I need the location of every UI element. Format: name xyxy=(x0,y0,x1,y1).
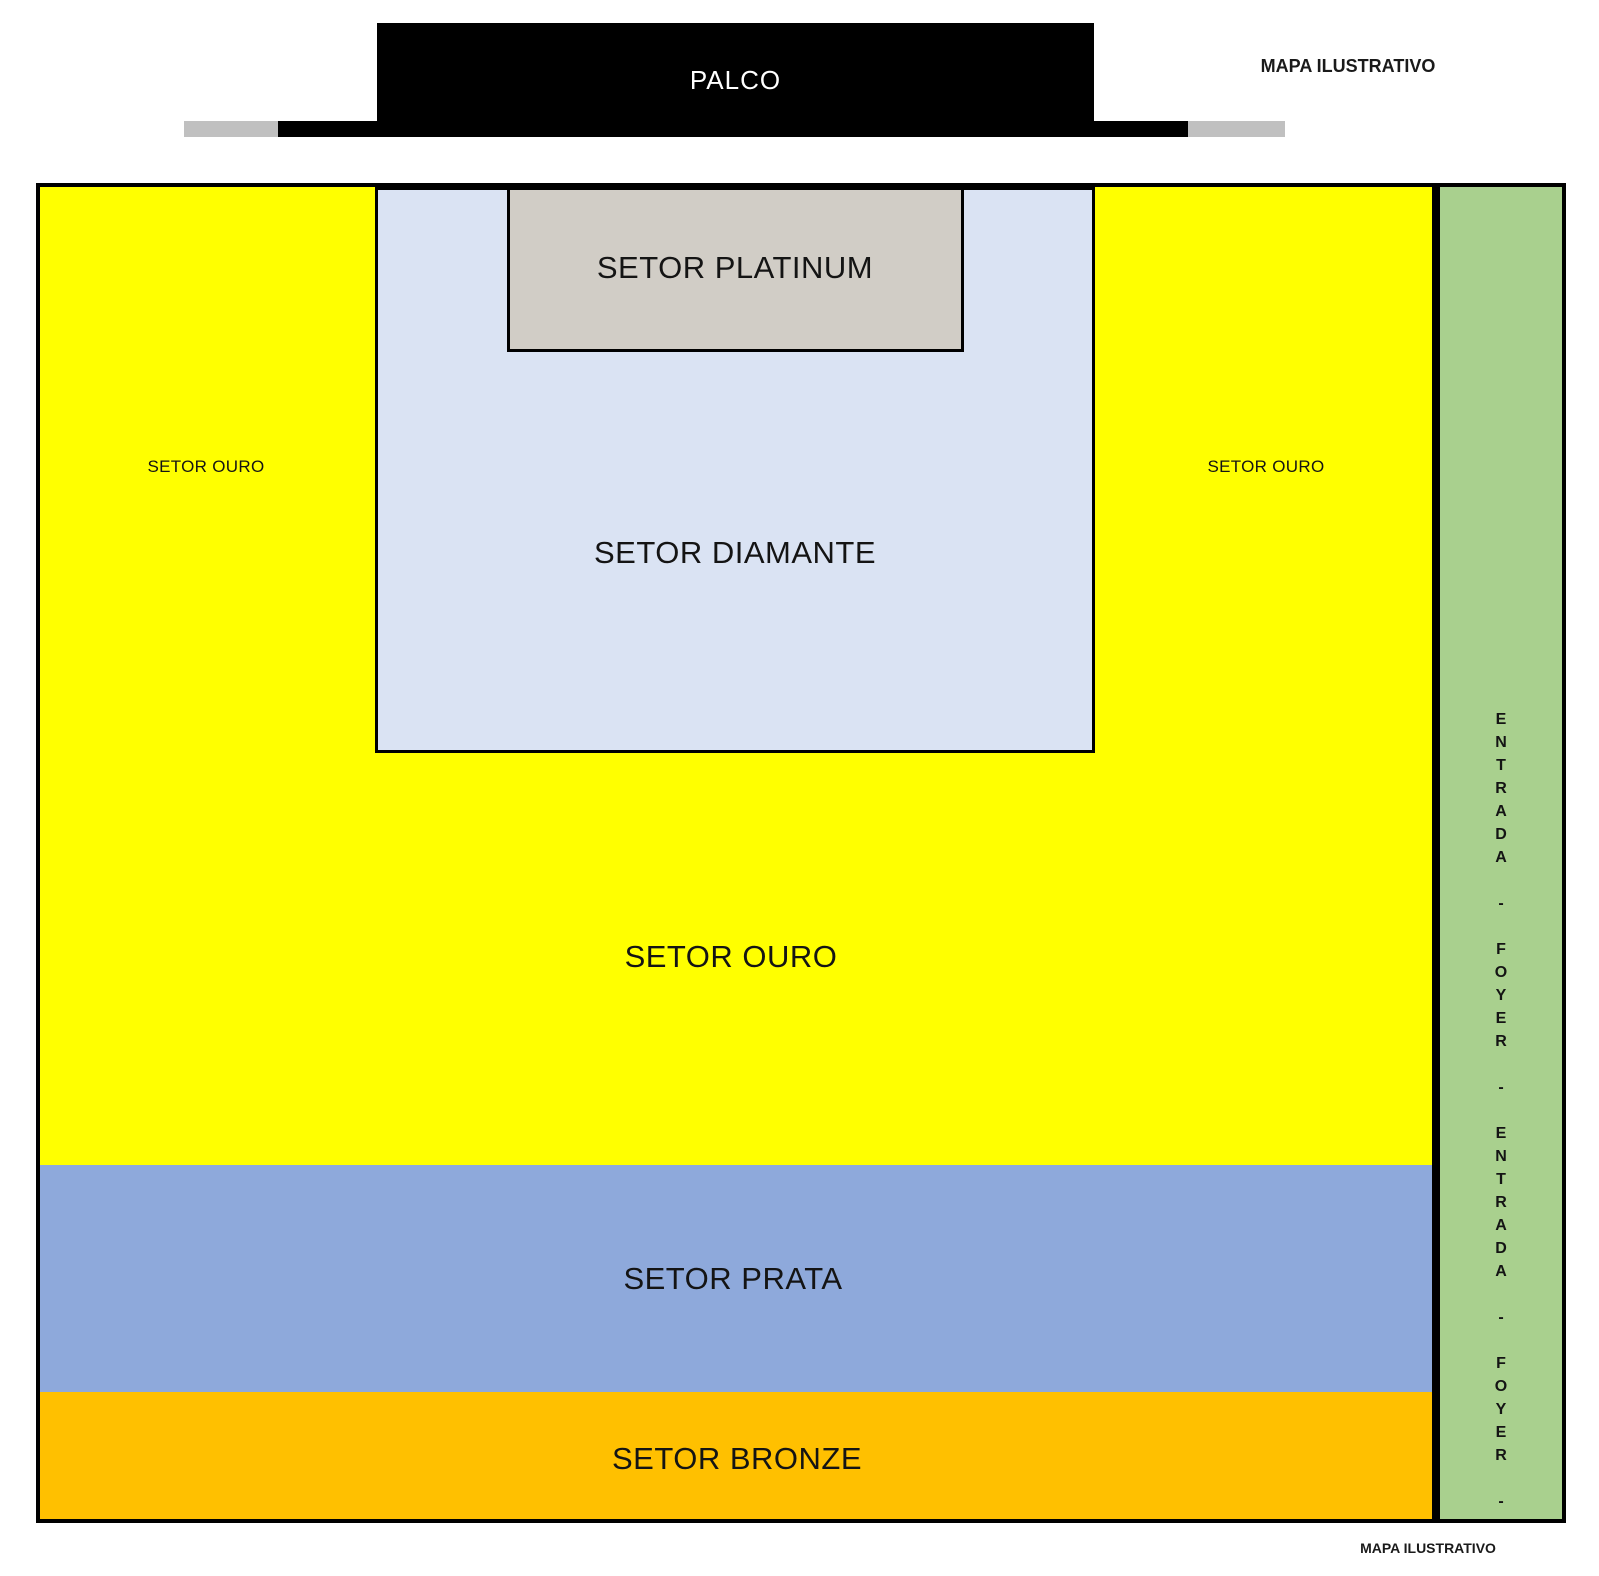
watermark-bottom: MAPA ILUSTRATIVO xyxy=(1328,1540,1528,1556)
sector-ouro-right-label: SETOR OURO xyxy=(1208,457,1325,477)
sector-ouro-center-label: SETOR OURO xyxy=(625,939,838,975)
map-area: SETOR PLATINUM SETOR DIAMANTE SETOR OURO… xyxy=(36,183,1436,1523)
stage-label: PALCO xyxy=(690,65,781,96)
venue-seating-map: PALCO MAPA ILUSTRATIVO SETOR PLATINUM SE… xyxy=(0,0,1599,1576)
sector-diamante-label: SETOR DIAMANTE xyxy=(594,535,876,571)
stage-wing-right xyxy=(1188,121,1285,137)
stage-wing-left xyxy=(184,121,278,137)
entrance-foyer-vertical-text: E N T R A D A - F O Y E R - E N T R A D … xyxy=(1495,708,1507,1519)
stage: PALCO xyxy=(377,23,1094,137)
sector-ouro-left-label: SETOR OURO xyxy=(148,457,265,477)
sector-prata-label: SETOR PRATA xyxy=(623,1261,842,1297)
sector-bronze-label: SETOR BRONZE xyxy=(612,1441,862,1477)
sector-platinum-label: SETOR PLATINUM xyxy=(597,250,873,286)
entrance-foyer-strip: E N T R A D A - F O Y E R - E N T R A D … xyxy=(1436,183,1566,1523)
watermark-top: MAPA ILUSTRATIVO xyxy=(1248,56,1448,77)
